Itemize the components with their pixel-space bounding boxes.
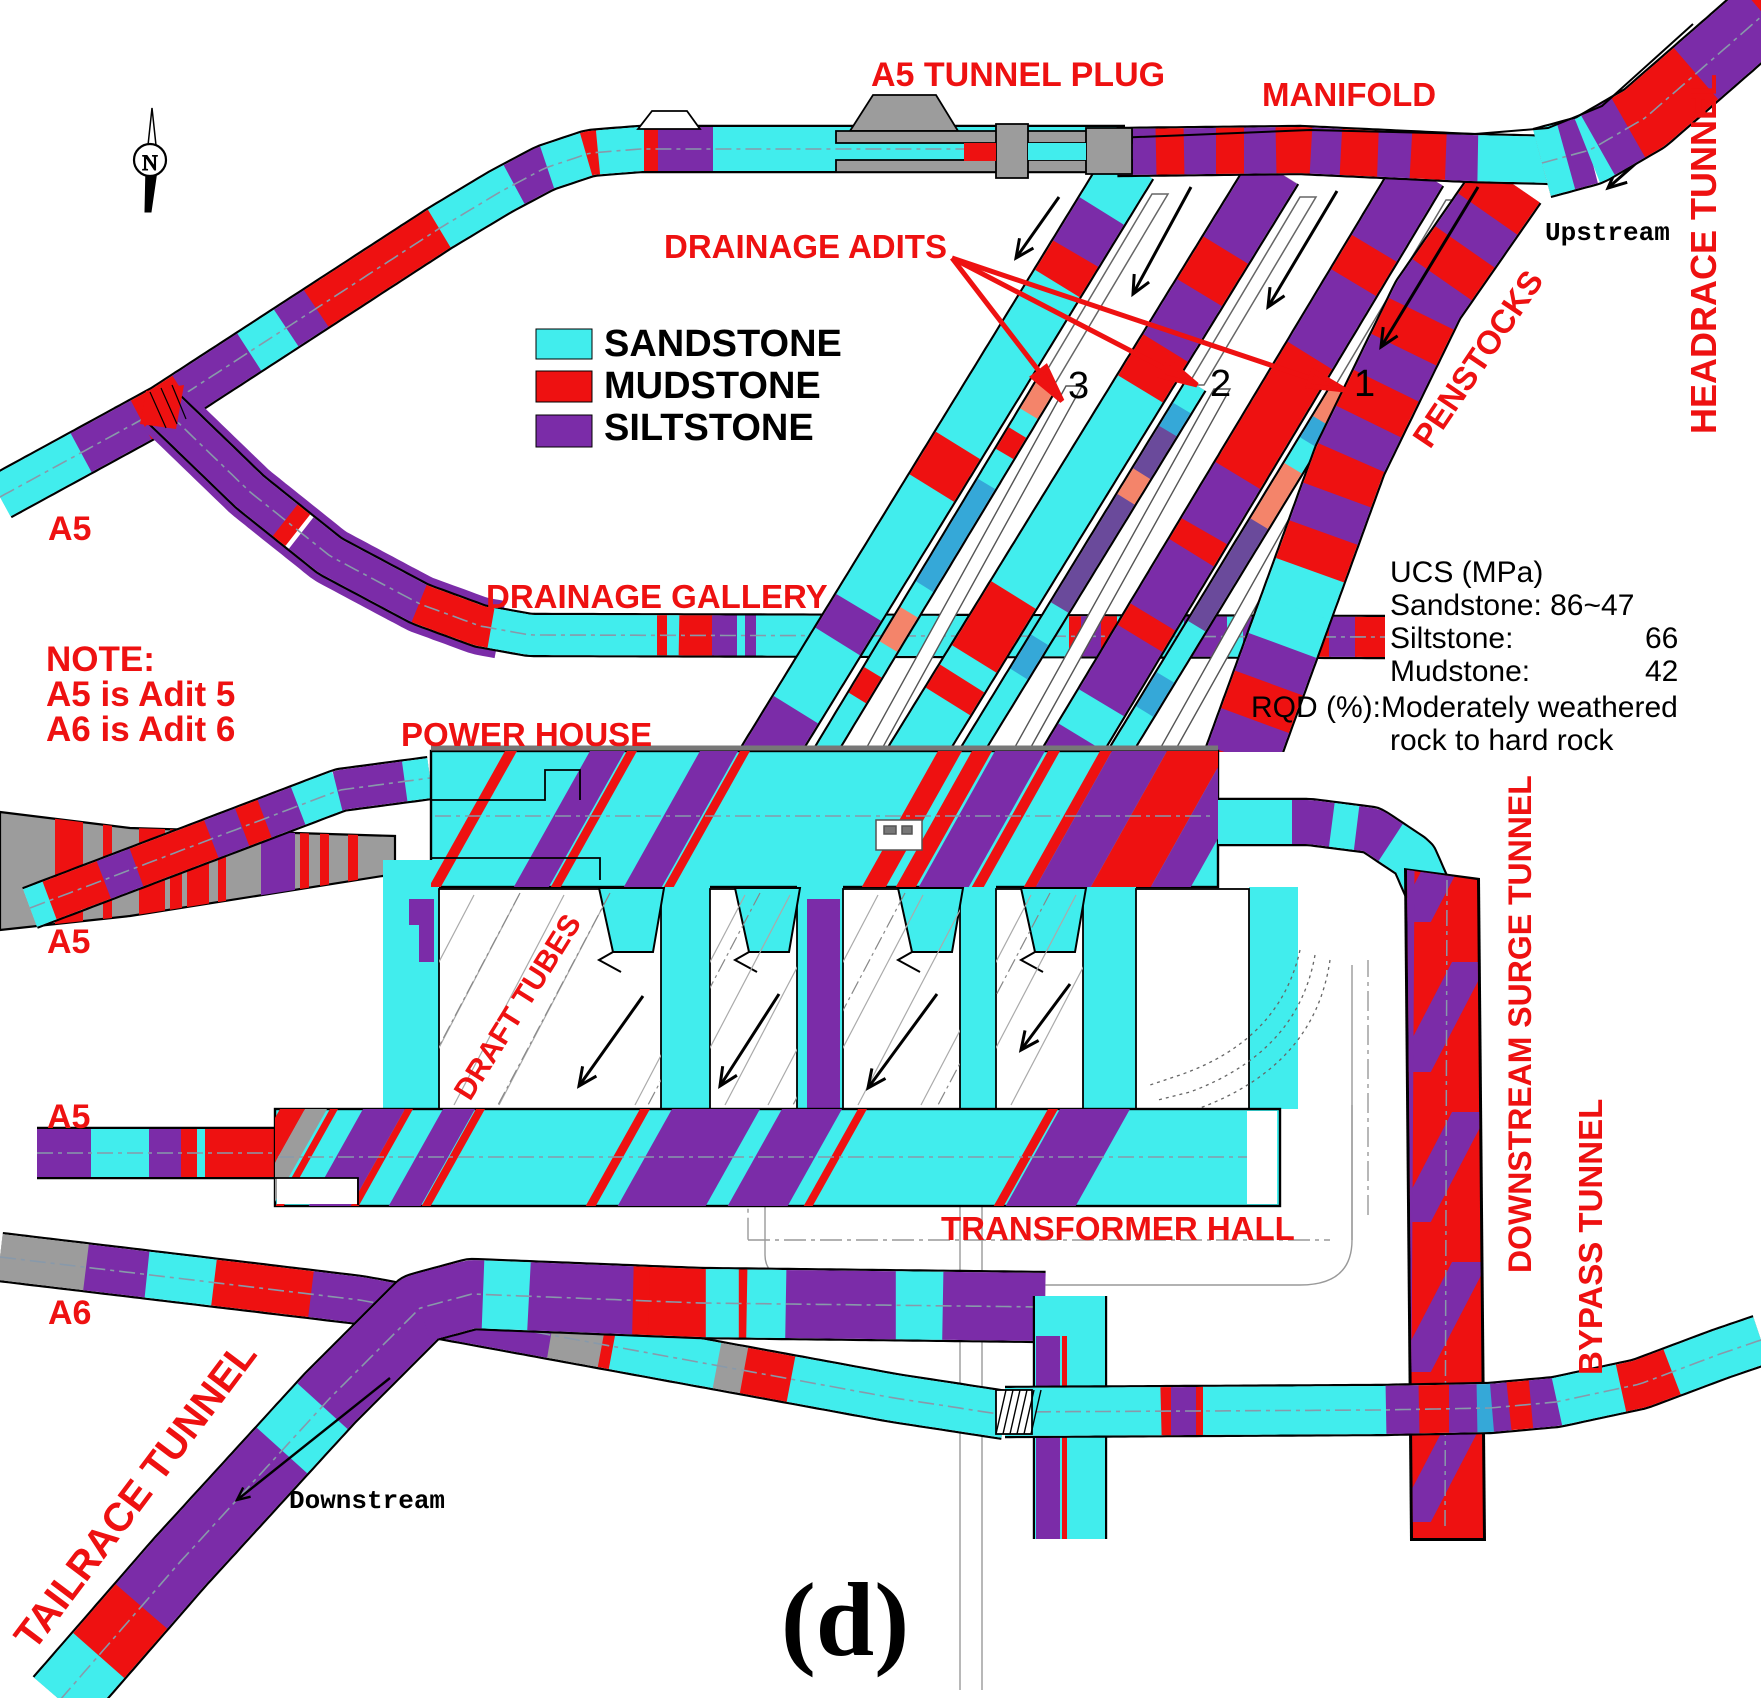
svg-text:TRANSFORMER HALL: TRANSFORMER HALL — [941, 1210, 1295, 1247]
svg-text:UCS (MPa): UCS (MPa) — [1390, 556, 1543, 589]
svg-text:rock to hard rock: rock to hard rock — [1390, 724, 1614, 757]
svg-text:A6: A6 — [48, 1294, 91, 1332]
svg-text:(d): (d) — [781, 1561, 909, 1678]
svg-text:HEADRACE TUNNEL: HEADRACE TUNNEL — [1683, 74, 1724, 434]
svg-text:A5 TUNNEL PLUG: A5 TUNNEL PLUG — [871, 56, 1165, 94]
svg-text:A6 is Adit 6: A6 is Adit 6 — [46, 710, 235, 749]
svg-text:NOTE:: NOTE: — [46, 640, 155, 679]
svg-text:MANIFOLD: MANIFOLD — [1262, 76, 1436, 113]
svg-text:2: 2 — [1210, 363, 1231, 405]
svg-text:Mudstone:: Mudstone: — [1390, 655, 1530, 688]
svg-text:A5: A5 — [47, 1098, 90, 1136]
svg-text:Downstream: Downstream — [289, 1486, 445, 1516]
svg-text:MUDSTONE: MUDSTONE — [604, 365, 821, 407]
svg-text:A5 is Adit 5: A5 is Adit 5 — [46, 675, 235, 714]
svg-text:A5: A5 — [48, 510, 91, 548]
svg-text:SILTSTONE: SILTSTONE — [604, 407, 814, 449]
svg-text:42: 42 — [1645, 655, 1678, 688]
svg-text:DRAINAGE GALLERY: DRAINAGE GALLERY — [486, 578, 828, 615]
svg-text:Sandstone: 86~47: Sandstone: 86~47 — [1390, 589, 1634, 622]
svg-text:BYPASS TUNNEL: BYPASS TUNNEL — [1572, 1099, 1609, 1375]
svg-text:A5: A5 — [47, 923, 90, 961]
svg-text:RQD (%):Moderately weathered: RQD (%):Moderately weathered — [1251, 691, 1678, 724]
svg-text:Upstream: Upstream — [1545, 218, 1670, 248]
svg-text:3: 3 — [1068, 365, 1089, 407]
svg-text:SANDSTONE: SANDSTONE — [604, 323, 842, 365]
svg-text:POWER HOUSE: POWER HOUSE — [401, 716, 652, 753]
svg-text:Siltstone:: Siltstone: — [1390, 622, 1513, 655]
svg-text:1: 1 — [1354, 363, 1375, 405]
svg-text:N: N — [142, 150, 158, 175]
svg-text:DOWNSTREAM SURGE TUNNEL: DOWNSTREAM SURGE TUNNEL — [1502, 775, 1538, 1273]
svg-text:66: 66 — [1645, 622, 1678, 655]
svg-text:DRAINAGE ADITS: DRAINAGE ADITS — [664, 228, 947, 265]
